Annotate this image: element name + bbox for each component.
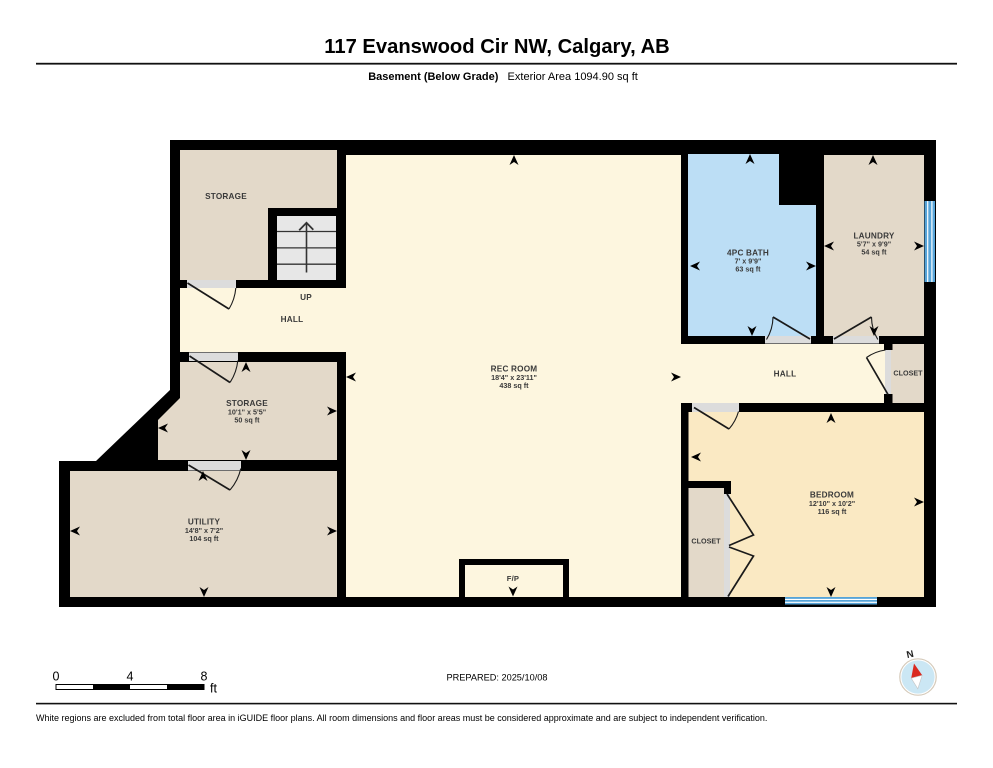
svg-text:0: 0 <box>53 670 60 684</box>
svg-text:CLOSET: CLOSET <box>893 369 923 378</box>
svg-text:ft: ft <box>210 682 217 696</box>
svg-text:8: 8 <box>201 670 208 684</box>
svg-text:HALL: HALL <box>774 370 797 379</box>
svg-text:54 sq ft: 54 sq ft <box>861 248 887 257</box>
svg-text:438 sq ft: 438 sq ft <box>499 381 529 390</box>
svg-text:F/P: F/P <box>507 574 519 583</box>
svg-text:White regions are excluded fro: White regions are excluded from total fl… <box>36 713 767 723</box>
svg-text:4: 4 <box>127 670 134 684</box>
svg-text:104 sq ft: 104 sq ft <box>189 534 219 543</box>
svg-text:PREPARED: 2025/10/08: PREPARED: 2025/10/08 <box>447 673 548 683</box>
svg-text:STORAGE: STORAGE <box>205 192 247 201</box>
svg-text:117 Evanswood Cir NW, Calgary,: 117 Evanswood Cir NW, Calgary, AB <box>324 36 670 58</box>
svg-text:Basement (Below Grade) Exter: Basement (Below Grade) Exterior Area 109… <box>368 71 638 83</box>
svg-text:CLOSET: CLOSET <box>691 537 721 546</box>
svg-text:HALL: HALL <box>281 315 304 324</box>
svg-text:UP: UP <box>300 293 312 302</box>
svg-text:63 sq ft: 63 sq ft <box>735 265 761 274</box>
svg-text:116 sq ft: 116 sq ft <box>818 507 847 516</box>
svg-text:50 sq ft: 50 sq ft <box>234 416 260 425</box>
